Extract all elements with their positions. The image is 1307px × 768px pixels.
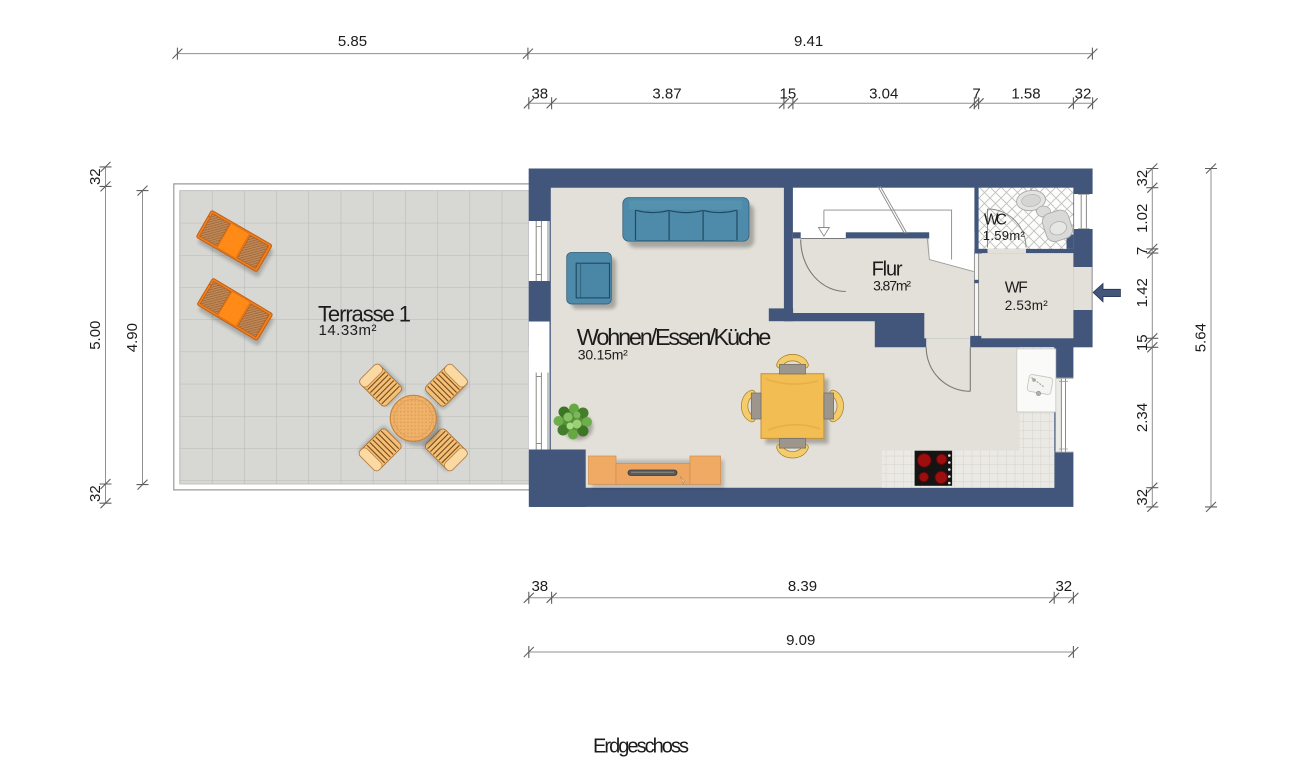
svg-text:1.59m²: 1.59m² [983,228,1026,243]
svg-text:Erdgeschoss: Erdgeschoss [593,736,689,758]
svg-text:5.64: 5.64 [1193,323,1210,352]
svg-text:1.02: 1.02 [1134,204,1151,233]
svg-text:9.09: 9.09 [786,632,815,649]
svg-text:2.34: 2.34 [1134,403,1151,432]
svg-text:5.85: 5.85 [338,33,367,50]
svg-text:7: 7 [972,86,980,103]
svg-text:2.53m²: 2.53m² [1005,298,1048,313]
svg-text:32: 32 [1134,489,1151,506]
svg-text:1.42: 1.42 [1134,278,1151,307]
svg-text:WC: WC [984,212,1007,229]
svg-text:32: 32 [1055,578,1072,595]
svg-text:WF: WF [1005,280,1028,297]
svg-text:3.87: 3.87 [652,86,681,103]
svg-text:15: 15 [1134,334,1151,351]
svg-text:8.39: 8.39 [788,578,817,595]
svg-text:3.04: 3.04 [869,86,898,103]
svg-text:3.87m²: 3.87m² [873,278,911,294]
svg-text:30.15m²: 30.15m² [578,347,628,363]
svg-text:32: 32 [1134,170,1151,187]
svg-text:9.41: 9.41 [794,33,823,50]
svg-text:32: 32 [1075,86,1092,103]
svg-text:7: 7 [1134,247,1151,255]
svg-text:32: 32 [87,168,104,185]
svg-text:4.90: 4.90 [124,323,141,352]
svg-text:32: 32 [87,485,104,502]
svg-text:15: 15 [780,86,797,103]
svg-text:5.00: 5.00 [87,321,104,350]
svg-text:38: 38 [531,578,548,595]
svg-text:14.33m²: 14.33m² [319,322,377,339]
svg-text:38: 38 [531,86,548,103]
svg-text:1.58: 1.58 [1011,86,1040,103]
